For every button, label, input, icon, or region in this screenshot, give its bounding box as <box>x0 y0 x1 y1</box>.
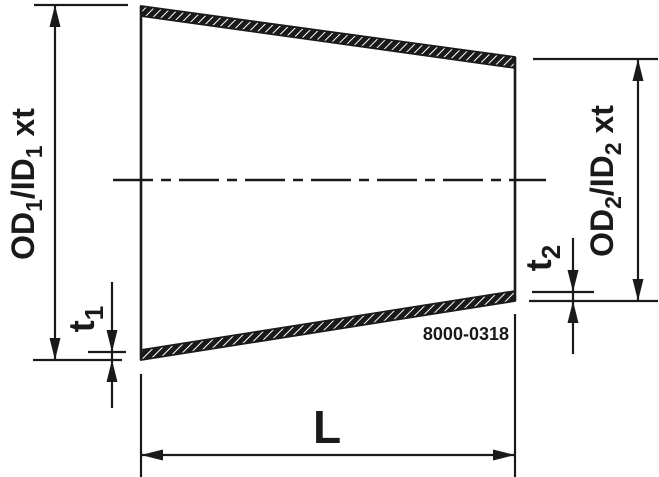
id2-label-subscript: 2 <box>600 142 626 155</box>
t1-arrow-down-icon <box>107 330 118 352</box>
t1-arrow-up-icon <box>107 360 118 382</box>
t2-arrow-down-icon <box>568 270 579 292</box>
id2-label-base: /ID <box>584 155 620 196</box>
od2-id2-label: OD2/ID2 xt <box>584 105 626 257</box>
od2-label-suffix: xt <box>584 105 620 143</box>
reducer-technical-drawing: OD1/ID1 xt OD2/ID2 xt t1 t2 L 8000-0318 <box>0 0 659 477</box>
od2-label-subscript: 2 <box>600 196 626 209</box>
t2-label: t2 <box>518 245 566 271</box>
part-number: 8000-0318 <box>423 324 509 344</box>
t1-label-base: t <box>61 320 102 332</box>
od1-id1-label: OD1/ID1 xt <box>5 108 47 260</box>
od1-label-base: OD <box>5 212 41 260</box>
t2-label-base: t <box>518 259 559 271</box>
length-arrow-right-icon <box>493 450 515 461</box>
length-arrow-left-icon <box>141 450 163 461</box>
od1-arrow-up-icon <box>50 5 61 27</box>
od2-label-base: OD <box>584 209 620 257</box>
od1-label-suffix: xt <box>5 108 41 146</box>
t2-arrow-up-icon <box>568 301 579 323</box>
od2-arrow-up-icon <box>633 59 644 81</box>
t2-label-subscript: 2 <box>536 245 566 259</box>
drawing-svg: OD1/ID1 xt OD2/ID2 xt t1 t2 L 8000-0318 <box>0 0 659 477</box>
od2-arrow-down-icon <box>633 279 644 301</box>
t1-label-subscript: 1 <box>79 306 109 320</box>
od1-arrow-down-icon <box>50 338 61 360</box>
length-label: L <box>313 401 341 453</box>
id1-label-subscript: 1 <box>21 145 47 158</box>
od1-label-subscript: 1 <box>21 199 47 212</box>
reducer-top-wall-section <box>141 6 515 68</box>
t1-label: t1 <box>61 306 109 332</box>
id1-label-base: /ID <box>5 158 41 199</box>
